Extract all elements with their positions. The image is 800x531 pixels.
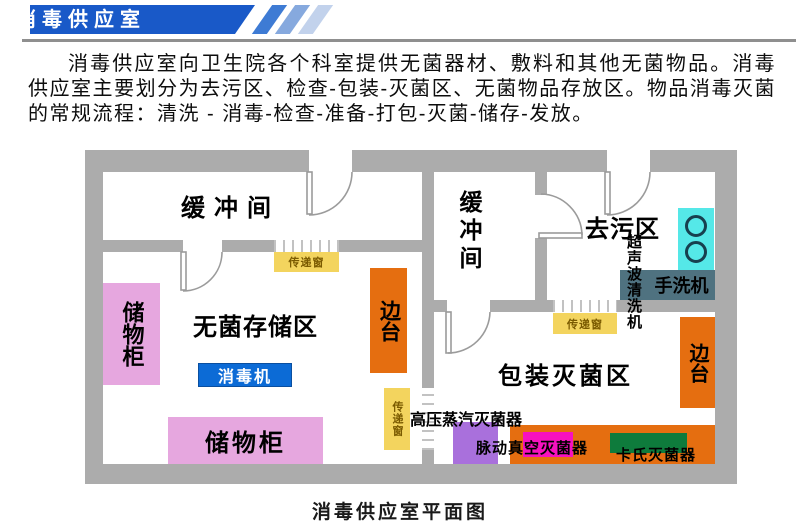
cassette-label: 卡氏灭菌器 bbox=[616, 444, 696, 465]
door-arc bbox=[309, 172, 352, 215]
side-table-left: 边台 bbox=[370, 268, 407, 373]
wall-segment bbox=[103, 240, 183, 252]
pass-window-label: 传递窗 bbox=[384, 388, 410, 450]
disinfector-machine: 消毒机 bbox=[198, 363, 292, 387]
pass-window-hatch bbox=[274, 240, 339, 252]
ultrasonic-cleaner-label: 超声波清洗机 bbox=[626, 234, 644, 384]
door-opening bbox=[309, 150, 352, 172]
door-leaf bbox=[181, 252, 186, 290]
wall-segment bbox=[422, 172, 434, 388]
page-title: 消毒供应室 bbox=[16, 3, 146, 32]
floor-plan: 储物柜 储物柜 边台 消毒机 传递窗 传递窗 手洗机 超声波清洗机 传递窗 边台… bbox=[85, 150, 737, 484]
storage-cabinet-bottom: 储物柜 bbox=[168, 417, 323, 464]
wall-segment bbox=[85, 464, 737, 484]
door-leaf bbox=[605, 172, 610, 214]
sink-basin-icon bbox=[685, 241, 707, 263]
sink-basin-icon bbox=[685, 215, 707, 237]
wall-segment bbox=[222, 240, 274, 252]
room-label-buffer-mid: 缓冲间 bbox=[454, 190, 486, 310]
door-arc bbox=[448, 312, 490, 353]
pulse-vacuum-label: 脉动真空灭菌器 bbox=[476, 437, 588, 458]
side-table-right: 边台 bbox=[680, 317, 715, 408]
room-label-sterile-storage: 无菌存储区 bbox=[193, 307, 318, 342]
intro-paragraph: 消毒供应室向卫生院各个科室提供无菌器材、敷料和其他无菌物品。消毒供应室主要划分为… bbox=[28, 52, 776, 127]
wall-segment bbox=[422, 450, 434, 464]
storage-cabinet-left: 储物柜 bbox=[103, 283, 160, 385]
header-divider bbox=[22, 39, 796, 42]
wall-segment bbox=[490, 300, 553, 312]
autoclave-label: 高压蒸汽灭菌器 bbox=[410, 406, 522, 430]
wall-segment bbox=[339, 240, 422, 252]
room-label-buffer-left: 缓冲间 bbox=[181, 188, 280, 223]
wall-segment bbox=[535, 172, 547, 195]
pass-window-hatch bbox=[553, 300, 617, 312]
door-arc bbox=[183, 252, 222, 291]
door-arc bbox=[541, 194, 582, 235]
wall-segment bbox=[85, 150, 103, 484]
wall-segment bbox=[715, 150, 737, 484]
door-leaf bbox=[307, 172, 312, 214]
door-leaf bbox=[446, 312, 451, 353]
room-label-packaging: 包装灭菌区 bbox=[498, 356, 633, 391]
figure-caption: 消毒供应室平面图 bbox=[0, 497, 800, 524]
ultrasonic-sink bbox=[678, 208, 714, 270]
pass-window-label: 传递窗 bbox=[274, 252, 339, 272]
wall-segment bbox=[434, 300, 447, 312]
pass-window-label: 传递窗 bbox=[553, 313, 617, 334]
page: { "header": { "title": "消毒供应室" }, "intro… bbox=[0, 0, 800, 531]
door-opening bbox=[607, 150, 650, 172]
